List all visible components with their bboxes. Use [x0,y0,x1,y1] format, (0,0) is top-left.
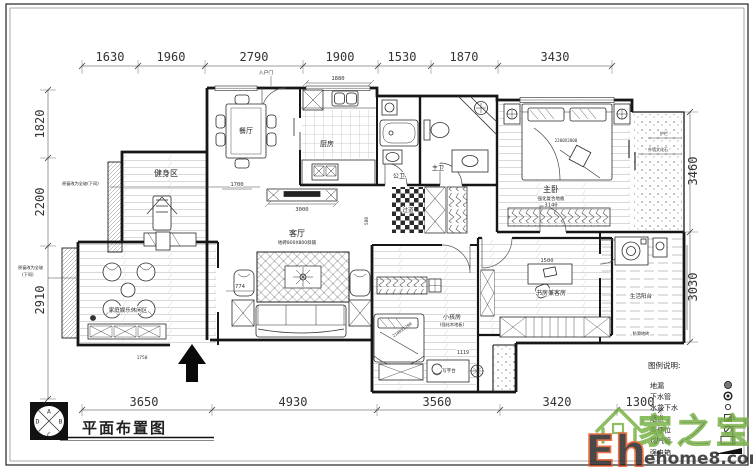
toilet [431,123,449,138]
dim-top-1: 1630 [96,50,125,64]
dim-3140: 3140 [544,203,557,209]
dim-top-3: 2790 [240,50,269,64]
compass-d: D [36,418,40,426]
dim-bottom-3: 3560 [423,395,452,409]
compass-c: C [47,431,51,439]
orientation-compass: A B C D [30,402,68,440]
dim-1880: 1880 [331,76,344,82]
dim-1119: 1119 [457,350,469,356]
study-desk [528,264,572,284]
dim-top-7: 3430 [541,50,570,64]
dim-left-1: 1820 [33,110,47,139]
armchair [234,270,254,296]
dim-1500: 1500 [540,258,553,264]
legend-item-floordrain: 地漏 [650,381,664,390]
dining-label: 餐厅 [239,126,253,135]
bookshelf [500,317,610,337]
study-label: 书房兼客房 [536,289,566,297]
watermark-site: ehome8.com [644,449,753,469]
balcony-rail-note: 护栏 [660,130,668,136]
stove [312,164,338,180]
chandelier [293,267,313,287]
leisure-chair [137,263,155,281]
basin-drain-icon [725,404,730,409]
legend-item-basindrain: 水盆下水 [650,403,678,412]
bathtub [380,120,418,146]
tv [284,192,320,197]
leisure-chair [103,263,121,281]
dim-1750: 1750 [137,355,148,361]
dim-1700: 1700 [230,182,243,188]
master-sub-label: 强化复合地板 [538,195,565,202]
window-note-2b: (下同) [22,272,34,278]
fitness-label: 健身区 [154,168,178,178]
master-label: 主卧 [543,184,559,194]
entry-door-note: 入户门 [259,69,274,76]
bath-master-label: 主卫 [432,164,444,172]
hallway-label: 过道 [402,206,414,214]
washing-machine [615,237,648,265]
drawing-title: 平面布置图 [82,419,167,437]
utility-label: 生活阳台 [630,292,653,300]
dim-774: 774 [235,284,246,290]
dim-top-6: 1870 [450,50,479,64]
dim-right-1: 3460 [686,157,700,186]
master-wardrobe [508,208,610,226]
balcony-stone-note: 外墙文化石 [648,146,668,152]
leisure-table [121,283,135,297]
title-block: A B C D 平面布置图 [30,402,214,441]
compass-a: A [47,408,51,416]
shower [458,96,497,135]
kids-label: 小孩房 [443,313,461,321]
bath-public-label: 公卫 [393,173,405,180]
sofa [256,305,346,337]
floor-drain-icon [724,381,731,388]
watermark: 家之宝 Eh ehome8.com [585,409,753,469]
legend-title: 图例说明: [648,360,681,370]
entrance-arrow [178,344,206,382]
master-bed-size: 2200X2000 [555,138,578,143]
dim-3000: 3000 [295,207,308,213]
dim-bottom-2: 4930 [279,395,308,409]
dim-right-2: 3030 [686,273,700,302]
dim-bottom-1: 3650 [130,395,159,409]
dim-left-3: 2910 [33,286,47,315]
watermark-brand: 家之宝 [638,412,753,452]
dim-left-2: 2200 [33,188,47,217]
water-heater [653,238,667,257]
armchair [350,270,370,296]
kids-wardrobe [377,277,427,294]
dim-580: 580 [364,217,370,225]
floor-plan-canvas: 健身区 家庭娱乐休闲区 餐厅 厨房 客厅 地砖800X800斜铺 公卫 主卫 过… [0,0,753,469]
toilet-tank [424,120,430,140]
leisure-label: 家庭娱乐休闲区 [109,306,148,314]
vanity [452,150,488,172]
dim-top-4: 1900 [326,50,355,64]
compass-b: B [59,418,63,426]
leisure-shelf [88,324,166,339]
dim-bottom-4: 3420 [543,395,572,409]
kitchen-label: 厨房 [320,139,334,148]
dim-top-2: 1960 [157,50,186,64]
living-sub-label: 地砖800X800斜铺 [278,239,317,246]
legend-item-drainpipe: 下水管 [650,392,671,401]
desk-label: 写字台 [442,367,456,374]
drain-pipe-icon [724,392,732,400]
watermark-logo: Eh [585,426,646,469]
kids-sub-label: (强化木地板) [440,321,465,328]
window-note: 原窗改为全玻(下同) [62,180,99,187]
living-label: 客厅 [289,228,305,238]
window-note-2a: 原窗改为全玻 [18,264,44,271]
floor-plan-page: 健身区 家庭娱乐休闲区 餐厅 厨房 客厅 地砖800X800斜铺 公卫 主卫 过… [0,0,753,469]
bath-washer [382,100,397,115]
dim-top-5: 1530 [388,50,417,64]
utility-sub-label: 防滑地砖 [633,330,650,337]
